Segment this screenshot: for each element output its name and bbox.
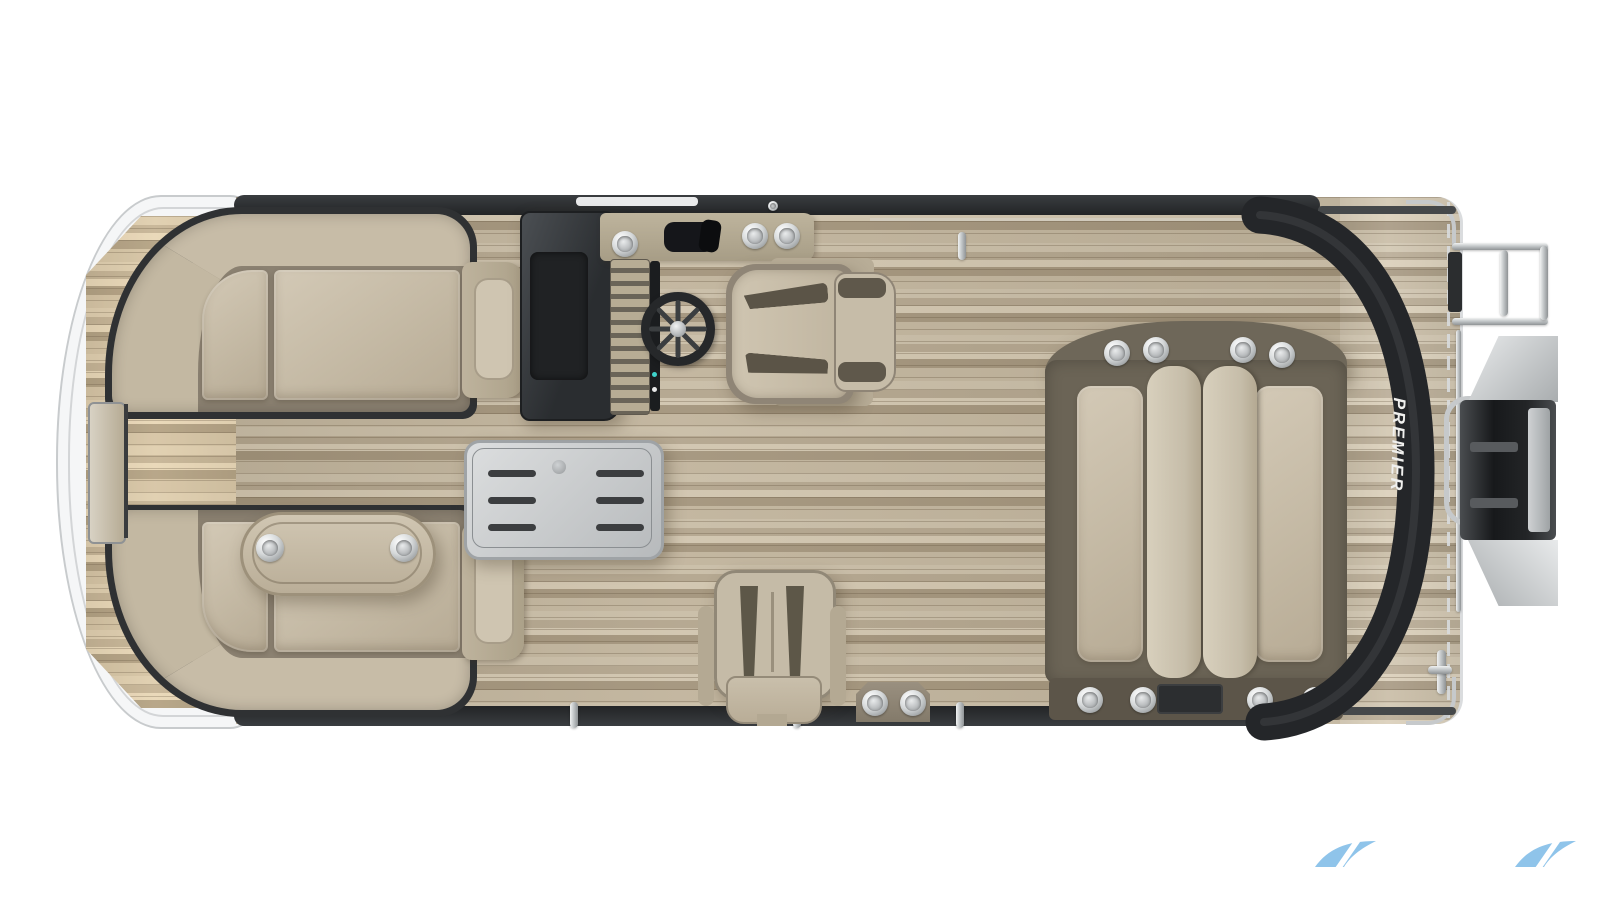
arch-tower bbox=[0, 0, 1600, 900]
boat-floorplan-render: PREMIER bbox=[0, 0, 1600, 900]
premier-wave-swoosh-icon bbox=[1512, 840, 1578, 868]
premier-wave-swoosh-icon bbox=[1312, 840, 1378, 868]
